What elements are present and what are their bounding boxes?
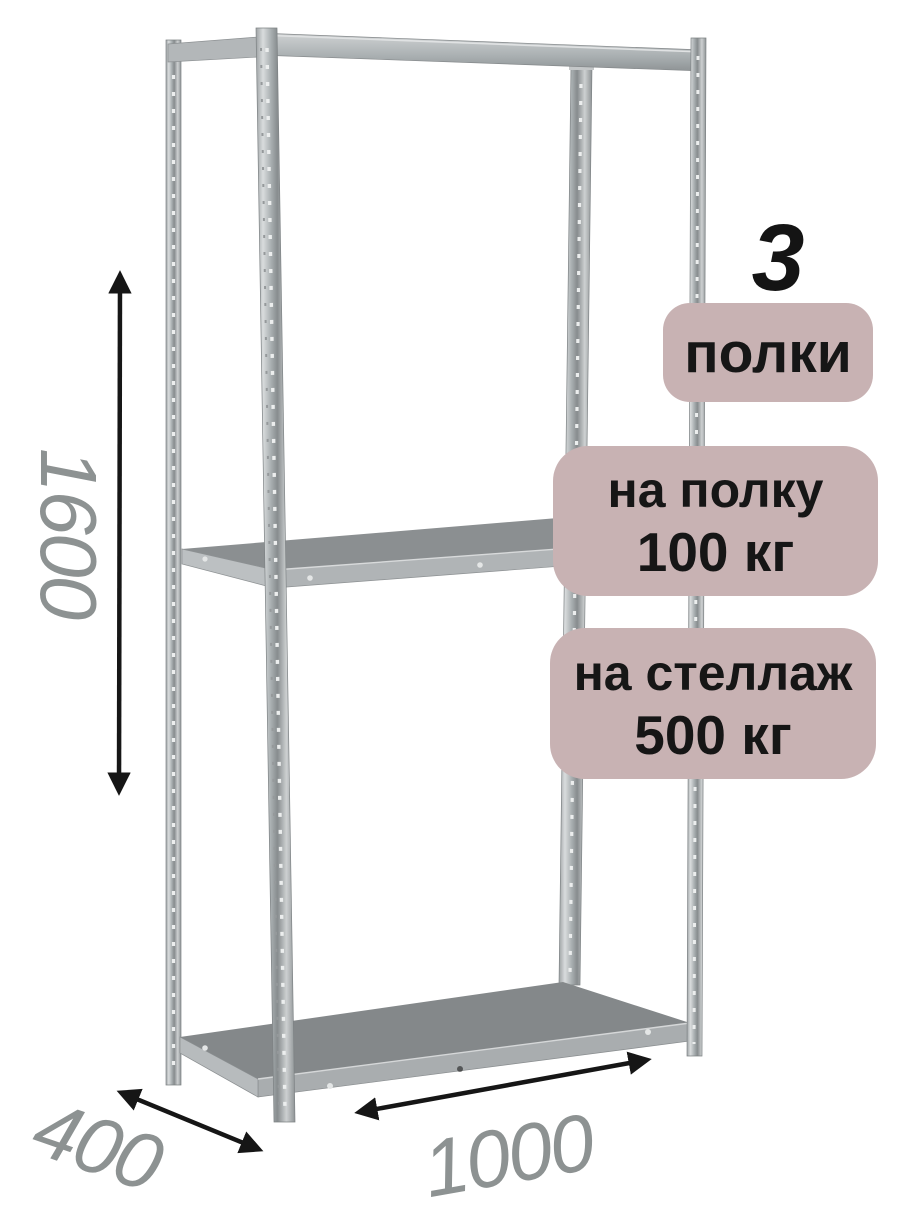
shelf-count-label: полки: [684, 323, 852, 383]
shelf-load-badge: на полку 100 кг: [553, 446, 878, 596]
shelf-load-text: на полку: [608, 459, 824, 521]
shelf-count-badge: полки: [663, 303, 873, 402]
rack-load-text: на стеллаж: [574, 642, 853, 704]
shelf-count-number: 3: [733, 208, 823, 308]
rear-left-post: [166, 40, 181, 1085]
rack-load-value: 500 кг: [634, 704, 791, 766]
bottom-shelf: [180, 982, 690, 1097]
rack-load-badge: на стеллаж 500 кг: [550, 628, 876, 779]
top-frame: [168, 33, 703, 71]
height-arrow: [119, 276, 120, 790]
shelf-load-value: 100 кг: [637, 521, 794, 583]
height-dimension-label: 1600: [22, 448, 114, 618]
product-image: 3 полки на полку 100 кг на стеллаж 500 к…: [0, 0, 900, 1200]
shelving-rack-illustration: [0, 0, 900, 1200]
